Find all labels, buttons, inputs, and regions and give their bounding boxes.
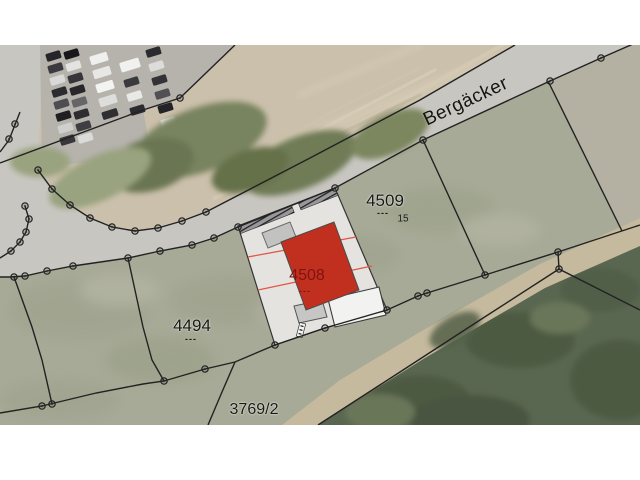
parcel-label-4494[interactable]: 4494: [173, 316, 211, 336]
parcel-label-3769-2[interactable]: 3769/2: [230, 401, 279, 419]
parcel-4508-area-marks: ---: [299, 286, 311, 296]
house-number-15: 15: [397, 214, 408, 225]
parcel-label-4508[interactable]: 4508: [289, 267, 325, 285]
map-canvas[interactable]: Bergäcker 4509 --- 15 4494 --- 3769/2 45…: [0, 0, 640, 480]
parcel-4509-area-marks: ---: [377, 208, 389, 218]
parcel-4494-area-marks: ---: [185, 334, 197, 344]
aerial-map-image: [0, 0, 640, 480]
